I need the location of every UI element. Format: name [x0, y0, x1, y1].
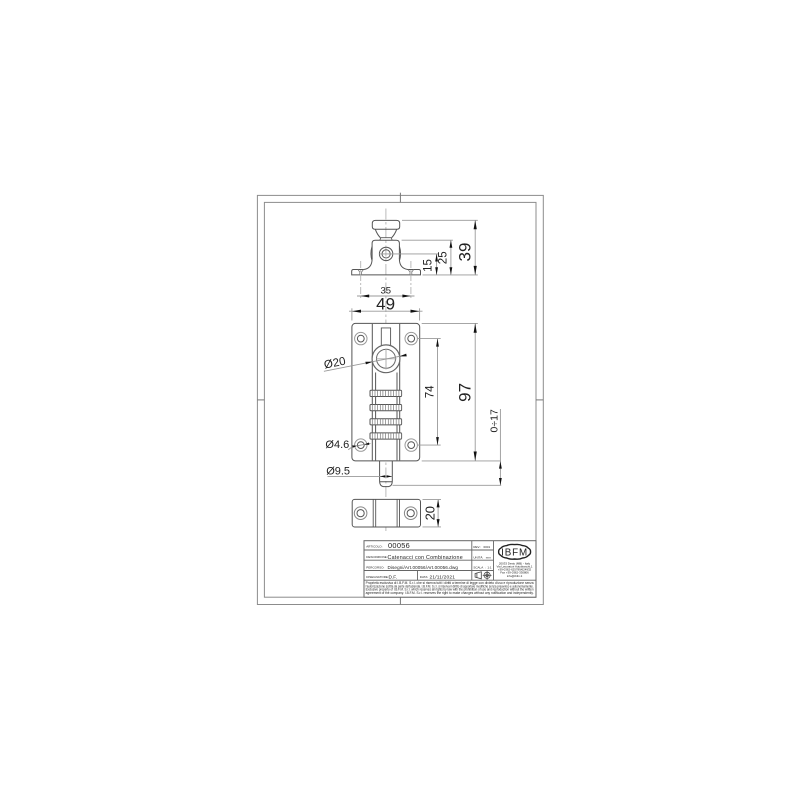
svg-text:ARTICOLO:: ARTICOLO:	[366, 545, 382, 549]
svg-text:IBFM: IBFM	[501, 547, 528, 558]
svg-text:DESCRIZIONE:: DESCRIZIONE:	[366, 555, 388, 559]
svg-text:DATA:: DATA:	[420, 575, 429, 579]
svg-text:15: 15	[422, 259, 434, 272]
svg-text:74: 74	[425, 385, 437, 398]
svg-text:D.F.: D.F.	[389, 574, 398, 580]
svg-text:PERCORSO:: PERCORSO:	[366, 565, 384, 569]
svg-text:97: 97	[455, 383, 474, 402]
svg-text:Ø9.5: Ø9.5	[326, 465, 350, 477]
svg-text:20: 20	[423, 506, 438, 520]
svg-text:39: 39	[455, 243, 474, 262]
svg-text:UNITÀ: mm: UNITÀ: mm	[473, 555, 491, 559]
svg-text:25: 25	[437, 251, 449, 264]
svg-text:Disegni/Art.00056/Art.00056.dw: Disegni/Art.00056/Art.00056.dwg	[388, 565, 459, 570]
svg-text:49: 49	[376, 294, 395, 313]
svg-text:info@ibfm.it: info@ibfm.it	[507, 574, 523, 578]
svg-text:00056: 00056	[388, 541, 410, 550]
svg-text:21/11/2021: 21/11/2021	[430, 574, 456, 580]
svg-text:REV.: 0001: REV.: 0001	[473, 545, 490, 549]
svg-text:DISEGNATORE:: DISEGNATORE:	[366, 575, 389, 579]
svg-text:Ø4.6: Ø4.6	[325, 439, 349, 451]
svg-text:SCALA : 1:1: SCALA : 1:1	[473, 566, 492, 570]
svg-text:0÷17: 0÷17	[488, 409, 500, 432]
svg-text:Catenacci con Combinazione: Catenacci con Combinazione	[388, 555, 463, 561]
svg-text:agreement of the company. I.B.: agreement of the company. I.B.F.M. S.r.l…	[366, 591, 534, 595]
